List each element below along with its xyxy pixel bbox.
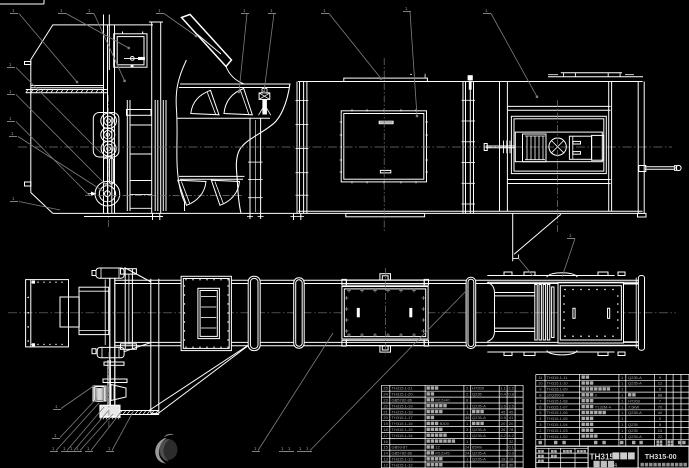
svg-text:TH315.1-17: TH315.1-17 [392,415,414,420]
svg-text:TH315.1-21: TH315.1-21 [392,386,414,391]
svg-text:Q235-A: Q235-A [628,375,642,380]
svg-text:TH315.1-20: TH315.1-20 [392,392,414,397]
svg-text:TH315.1-02: TH315.1-02 [547,434,569,439]
svg-text:40: 40 [658,410,663,415]
svg-text:HT200: HT200 [628,398,641,403]
svg-text:Q235-A: Q235-A [628,434,642,439]
svg-text:16: 16 [383,439,388,444]
svg-text:22: 22 [383,403,388,408]
svg-text:4.2: 4.2 [508,433,514,438]
svg-text:17: 17 [383,433,388,438]
svg-text:10: 10 [538,381,543,386]
svg-text:24: 24 [383,392,388,397]
svg-text:GB5782-86: GB5782-86 [392,451,413,456]
svg-text:24: 24 [465,451,470,456]
svg-text:TH315.1-05: TH315.1-05 [547,416,569,421]
svg-text:20: 20 [509,421,514,426]
svg-text:45: 45 [501,409,506,414]
svg-text:Q235-A: Q235-A [472,415,486,420]
svg-text:18: 18 [509,457,514,462]
svg-text:15: 15 [658,428,663,433]
svg-text:12: 12 [658,381,663,386]
svg-text:23: 23 [383,398,388,403]
svg-text:30: 30 [501,462,506,467]
svg-text:20: 20 [501,421,506,426]
svg-text:TH315.1-06: TH315.1-06 [547,410,569,415]
svg-text:7.5kW: 7.5kW [628,404,640,409]
svg-text:24: 24 [465,445,470,450]
svg-text:TH315.1-11: TH315.1-11 [547,375,569,380]
svg-text:Q235-A: Q235-A [472,451,486,456]
svg-text:Q235: Q235 [472,392,483,397]
svg-text:3.5: 3.5 [508,403,514,408]
svg-text:B300: B300 [440,421,450,426]
svg-text:0.9: 0.9 [500,415,506,420]
svg-text:GB93-87: GB93-87 [392,445,409,450]
svg-text:TH315: TH315 [590,453,615,462]
svg-text:Q235: Q235 [628,422,639,427]
svg-text:13: 13 [383,457,388,462]
svg-text:41: 41 [509,415,514,420]
svg-text:32: 32 [509,439,514,444]
svg-text:Q235-A: Q235-A [472,457,486,462]
svg-text:0.3: 0.3 [508,451,514,456]
svg-text:45: 45 [509,409,514,414]
svg-text:TH315.1-19: TH315.1-19 [392,403,414,408]
svg-text:4: 4 [614,463,617,468]
svg-text:0.8: 0.8 [508,392,514,397]
svg-text:30: 30 [509,462,514,467]
svg-text:65Mn: 65Mn [472,445,482,450]
svg-text:46: 46 [465,415,470,420]
svg-text:18: 18 [501,457,506,462]
svg-text:TH315-00: TH315-00 [645,452,677,461]
svg-text:1.1: 1.1 [500,386,506,391]
svg-text:4.2: 4.2 [500,433,506,438]
svg-text:M12x40: M12x40 [435,398,450,403]
svg-text:12: 12 [435,445,440,450]
svg-text:TH315.1-03: TH315.1-03 [547,428,569,433]
svg-text:TH315.1-13: TH315.1-13 [392,457,414,462]
svg-text:Y132M-4: Y132M-4 [595,404,612,409]
svg-text:TH315.1-08: TH315.1-08 [547,398,569,403]
svg-text:TH315.1-04: TH315.1-04 [547,422,569,427]
svg-text:0.1: 0.1 [508,445,514,450]
svg-text:Q235-A: Q235-A [628,410,642,415]
svg-text:TH315.1-09: TH315.1-09 [547,387,569,392]
svg-text:25: 25 [383,386,388,391]
svg-text:TH315.1-07: TH315.1-07 [547,404,569,409]
svg-text:JZQ350-II: JZQ350-II [547,393,565,398]
svg-text:18: 18 [383,427,388,432]
svg-text:Q235-A: Q235-A [472,427,486,432]
svg-text:TH315.1-10: TH315.1-10 [547,381,569,386]
svg-text:15: 15 [383,445,388,450]
svg-text:19: 19 [383,421,388,426]
svg-text:TH315.1-15: TH315.1-15 [392,427,414,432]
svg-text:70: 70 [658,404,663,409]
svg-text:0.4: 0.4 [500,392,506,397]
svg-text:12: 12 [383,462,388,467]
svg-text:3.5: 3.5 [500,403,506,408]
svg-text:HT200: HT200 [472,386,485,391]
svg-text:TH315.1-12: TH315.1-12 [392,462,414,467]
svg-text:M12x45: M12x45 [435,451,450,456]
svg-text:78: 78 [509,427,514,432]
svg-text:2.2: 2.2 [508,386,514,391]
svg-text:Q235-A: Q235-A [628,381,642,386]
svg-text:Q235-A: Q235-A [472,403,486,408]
svg-text:Q235: Q235 [628,428,639,433]
svg-text:Q235-A: Q235-A [472,433,486,438]
svg-text:GB5782-86: GB5782-86 [392,398,413,403]
svg-text:TH315.1-14: TH315.1-14 [392,433,414,438]
svg-text:TH315.1-18: TH315.1-18 [392,409,414,414]
svg-text:TH315.1-16: TH315.1-16 [392,421,414,426]
svg-text:14: 14 [383,451,388,456]
svg-text:26: 26 [501,427,506,432]
svg-text:21: 21 [383,409,388,414]
svg-text:20: 20 [383,415,388,420]
svg-text:88: 88 [658,393,663,398]
svg-text:22: 22 [658,434,663,439]
